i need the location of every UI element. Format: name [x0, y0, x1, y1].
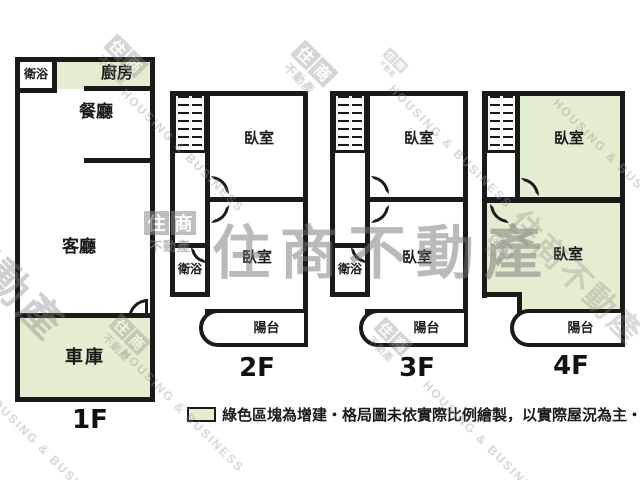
3f-bathroom-label: 衛浴 — [332, 263, 368, 276]
2f-door-arc-top — [211, 176, 229, 194]
2f-balcony: 陽台 — [199, 309, 308, 347]
2f-balcony-label: 陽台 — [253, 321, 279, 335]
3f-floor-label: 3F — [387, 353, 447, 383]
2f-bedroom-bottom-label: 臥室 — [212, 250, 302, 267]
3f-balcony-label: 陽台 — [413, 321, 439, 335]
1f-dining-label: 餐廳 — [66, 103, 126, 122]
watermark-en-text: HOUSING & BUSINESS — [420, 378, 549, 480]
4f-bedroom-top-label: 臥室 — [525, 131, 613, 148]
2f-bath-wall-bottom — [170, 292, 210, 297]
2f-floor-label: 2F — [227, 353, 287, 383]
4f-wall-mid — [482, 197, 625, 203]
2f-bedroom-top-label: 臥室 — [215, 131, 303, 148]
3f-staircase — [333, 93, 367, 153]
3f-wall-mid — [365, 197, 468, 202]
3f-bath-wall-bottom — [330, 292, 370, 297]
3f-bedroom-bottom-label: 臥室 — [372, 250, 462, 267]
4f-balcony-label: 陽台 — [567, 321, 593, 335]
2f-door-arc-bottom — [211, 205, 229, 223]
2f-wall-right — [303, 91, 308, 316]
3f-wall-right — [463, 91, 468, 316]
3f-door-arc-bottom — [371, 205, 389, 223]
4f-wall-right — [620, 91, 625, 319]
4f-wall-step-h — [482, 292, 522, 297]
1f-kitchen-label: 廚房 — [88, 65, 146, 83]
2f-wall-mid — [205, 197, 308, 202]
2f-bathroom-label: 衛浴 — [172, 263, 208, 276]
1f-garage: 車庫 — [15, 313, 155, 402]
2f-bath-door-arc — [191, 247, 207, 263]
4f-balcony: 陽台 — [510, 309, 625, 347]
1f-kitchen-wall — [84, 86, 150, 91]
logo-char: 住 — [382, 47, 399, 64]
3f-balcony: 陽台 — [359, 309, 468, 347]
4f-staircase — [485, 93, 518, 153]
logo-char: 住 — [290, 39, 321, 70]
1f-bathroom-label: 衛浴 — [24, 68, 48, 81]
1f-garage-label: 車庫 — [65, 348, 105, 368]
legend-green-swatch — [187, 407, 216, 422]
2f-staircase — [173, 93, 207, 153]
1f-bathroom: 衛浴 — [15, 57, 57, 93]
logo-char: 商 — [307, 57, 338, 88]
watermark-logo-rotated: 住商 不動產 — [374, 46, 409, 81]
3f-bedroom-top-label: 臥室 — [375, 131, 463, 148]
1f-dining-wall — [84, 158, 150, 163]
floor-plan-image: 衛浴 廚房 餐廳 客廳 車庫 1F 臥室 臥室 衛浴 陽台 2F — [0, 0, 640, 480]
1f-floor-label: 1F — [60, 405, 120, 435]
1f-outline — [15, 57, 155, 318]
legend-note: 綠色區塊為增建・格局圖未依實際比例繪製，以實際屋況為主・ — [222, 404, 640, 425]
logo-sub: 不動產 — [374, 55, 401, 82]
1f-living-label: 客廳 — [49, 238, 109, 257]
3f-door-arc-top — [371, 176, 389, 194]
4f-floor-label: 4F — [541, 351, 601, 381]
4f-bedroom-bottom-label: 臥室 — [523, 247, 613, 264]
3f-bath-door-arc — [351, 247, 367, 263]
logo-char: 商 — [392, 57, 409, 74]
